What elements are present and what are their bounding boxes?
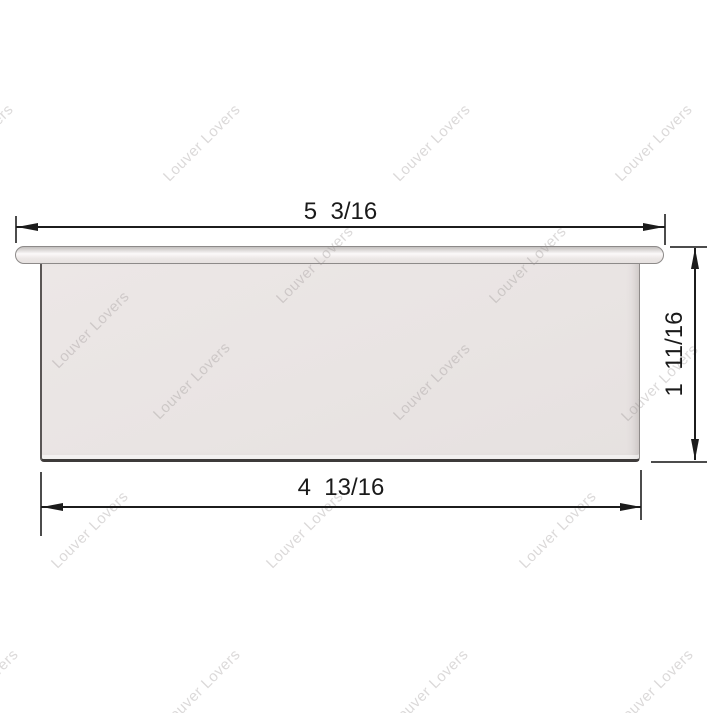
watermark-text: Louver Lovers xyxy=(613,646,697,713)
dimension-bottom-label: 4 13/16 xyxy=(41,476,641,500)
product-dimension-drawing: Louver LoversLouver LoversLouver LoversL… xyxy=(0,0,713,713)
watermark-text: Louver Lovers xyxy=(0,646,22,713)
watermark-text: Louver Lovers xyxy=(388,646,472,713)
part-body-panel xyxy=(40,263,640,462)
dimension-line-top xyxy=(16,226,665,228)
watermark-text: Louver Lovers xyxy=(612,101,696,185)
watermark-text: Louver Lovers xyxy=(516,488,600,572)
part-top-flange-rail xyxy=(15,246,664,264)
watermark-text: Louver Lovers xyxy=(160,101,244,185)
watermark-text: Louver Lovers xyxy=(390,101,474,185)
dim-arrowhead-left-icon xyxy=(17,223,38,231)
dimension-top-label: 5 3/16 xyxy=(16,200,665,224)
dimension-right-label: 1 11/16 xyxy=(663,312,687,397)
extension-line-right-top xyxy=(670,246,707,248)
dimension-line-right xyxy=(694,248,696,460)
watermark-text: Louver Lovers xyxy=(160,646,244,713)
dim-arrowhead-left-icon xyxy=(42,503,63,511)
dim-arrowhead-right-icon xyxy=(620,503,641,511)
watermark-text: Louver Lovers xyxy=(0,101,17,185)
dim-arrowhead-up-icon xyxy=(691,248,699,269)
dim-arrowhead-down-icon xyxy=(691,439,699,460)
extension-line-right-bottom xyxy=(651,461,707,463)
dimension-line-bottom xyxy=(41,506,641,508)
dim-arrowhead-right-icon xyxy=(643,223,664,231)
watermark-text: Louver Lovers xyxy=(48,488,132,572)
